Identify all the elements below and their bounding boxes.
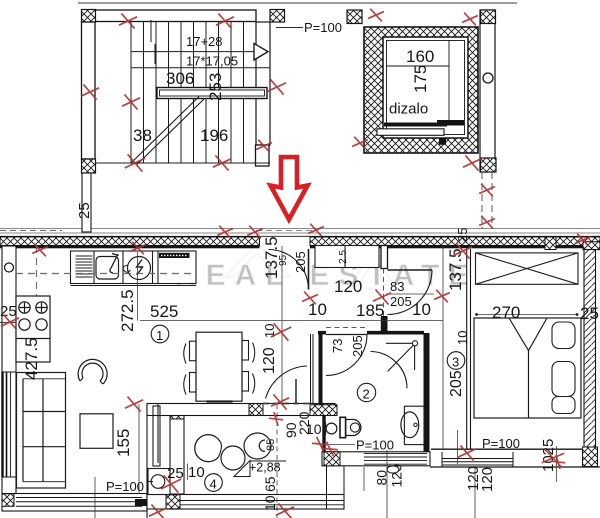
svg-text:205: 205 xyxy=(350,335,365,357)
svg-text:196: 196 xyxy=(200,126,228,145)
svg-text:17*17,05: 17*17,05 xyxy=(186,54,238,69)
svg-text:272.5: 272.5 xyxy=(118,289,137,332)
svg-text:427.5: 427.5 xyxy=(22,337,41,380)
svg-text:525: 525 xyxy=(150,302,178,321)
svg-text:10: 10 xyxy=(306,421,322,437)
svg-text:17+28: 17+28 xyxy=(186,34,223,49)
svg-text:38: 38 xyxy=(133,126,152,145)
svg-text:80: 80 xyxy=(374,470,390,486)
svg-text:P=100: P=100 xyxy=(482,436,520,451)
svg-text:P=100: P=100 xyxy=(356,438,394,453)
svg-text:205: 205 xyxy=(390,294,412,309)
svg-text:10: 10 xyxy=(455,331,470,345)
svg-text:10: 10 xyxy=(262,495,278,511)
svg-text:205: 205 xyxy=(448,370,465,397)
svg-text:120: 120 xyxy=(334,277,362,296)
svg-text:10: 10 xyxy=(188,464,205,481)
svg-text:85: 85 xyxy=(265,439,277,451)
svg-text:10: 10 xyxy=(412,300,431,319)
svg-text:160: 160 xyxy=(406,47,434,66)
svg-text:3: 3 xyxy=(452,355,459,370)
svg-text:dizalo: dizalo xyxy=(389,101,428,118)
svg-text:25: 25 xyxy=(455,228,470,242)
svg-text:306: 306 xyxy=(166,69,194,88)
svg-text:25: 25 xyxy=(76,202,93,219)
svg-text:120: 120 xyxy=(479,467,496,492)
svg-text:25: 25 xyxy=(0,303,17,320)
svg-text:253: 253 xyxy=(206,73,225,101)
svg-text:120: 120 xyxy=(261,347,278,374)
svg-text:1025: 1025 xyxy=(540,439,557,472)
svg-text:137.5: 137.5 xyxy=(262,236,281,279)
svg-text:2: 2 xyxy=(363,387,370,402)
svg-text:185: 185 xyxy=(356,301,384,320)
svg-text:205: 205 xyxy=(293,251,308,273)
svg-text:25: 25 xyxy=(580,304,599,323)
svg-text:P=100: P=100 xyxy=(106,479,144,494)
svg-text:65: 65 xyxy=(262,476,278,492)
svg-text:83: 83 xyxy=(390,279,404,294)
svg-text:1: 1 xyxy=(156,328,163,343)
svg-text:270: 270 xyxy=(492,303,520,322)
svg-text:175: 175 xyxy=(411,65,430,93)
svg-text:4: 4 xyxy=(210,477,217,492)
svg-text:P=100: P=100 xyxy=(304,20,342,35)
svg-text:155: 155 xyxy=(114,429,133,457)
svg-text:+2,88: +2,88 xyxy=(249,461,281,475)
svg-text:10: 10 xyxy=(308,300,327,319)
svg-text:73: 73 xyxy=(330,339,345,353)
svg-text:2.5: 2.5 xyxy=(338,250,349,264)
